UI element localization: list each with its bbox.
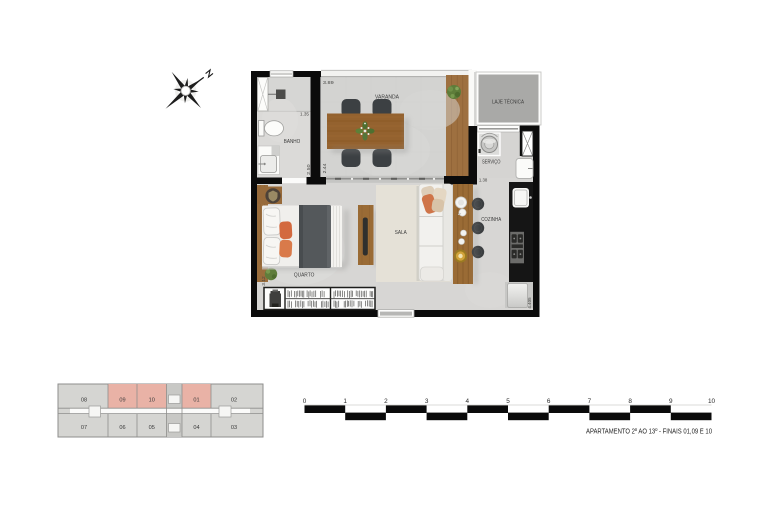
svg-text:7: 7 [588,398,592,405]
svg-text:1: 1 [343,398,347,405]
svg-text:LAJE TÉCNICA: LAJE TÉCNICA [492,99,525,106]
svg-text:SALA: SALA [395,230,408,236]
svg-text:4.405: 4.405 [527,297,532,309]
svg-text:0: 0 [303,398,307,405]
svg-text:5: 5 [506,398,510,405]
svg-text:1.38: 1.38 [479,177,488,182]
svg-text:3.12: 3.12 [261,276,266,286]
svg-text:2.50: 2.50 [306,164,311,175]
svg-text:04: 04 [193,425,199,431]
svg-text:SERVIÇO: SERVIÇO [482,159,501,165]
svg-text:6: 6 [547,398,551,405]
svg-text:9: 9 [669,398,673,405]
svg-text:07: 07 [81,425,87,431]
svg-text:8: 8 [628,398,632,405]
svg-text:01: 01 [193,398,199,404]
svg-text:QUARTO: QUARTO [294,273,315,279]
svg-text:1.35: 1.35 [300,112,309,117]
svg-text:10: 10 [708,398,716,405]
svg-text:2.44: 2.44 [322,163,327,173]
svg-text:COZINHA: COZINHA [481,217,502,223]
svg-text:08: 08 [81,398,87,404]
svg-text:05: 05 [149,425,155,431]
svg-text:02: 02 [231,398,237,404]
svg-text:APARTAMENTO 2º AO 13º - FINAIS: APARTAMENTO 2º AO 13º - FINAIS 01,09 E 1… [586,429,712,436]
svg-text:2: 2 [384,398,388,405]
svg-text:BANHO: BANHO [284,139,301,145]
svg-text:VARANDA: VARANDA [375,94,400,100]
svg-text:06: 06 [119,425,125,431]
svg-text:10: 10 [149,398,155,404]
svg-text:03: 03 [231,425,237,431]
svg-text:4: 4 [466,398,470,405]
svg-text:3.89: 3.89 [323,80,334,85]
svg-text:09: 09 [119,398,125,404]
svg-text:3: 3 [425,398,429,405]
